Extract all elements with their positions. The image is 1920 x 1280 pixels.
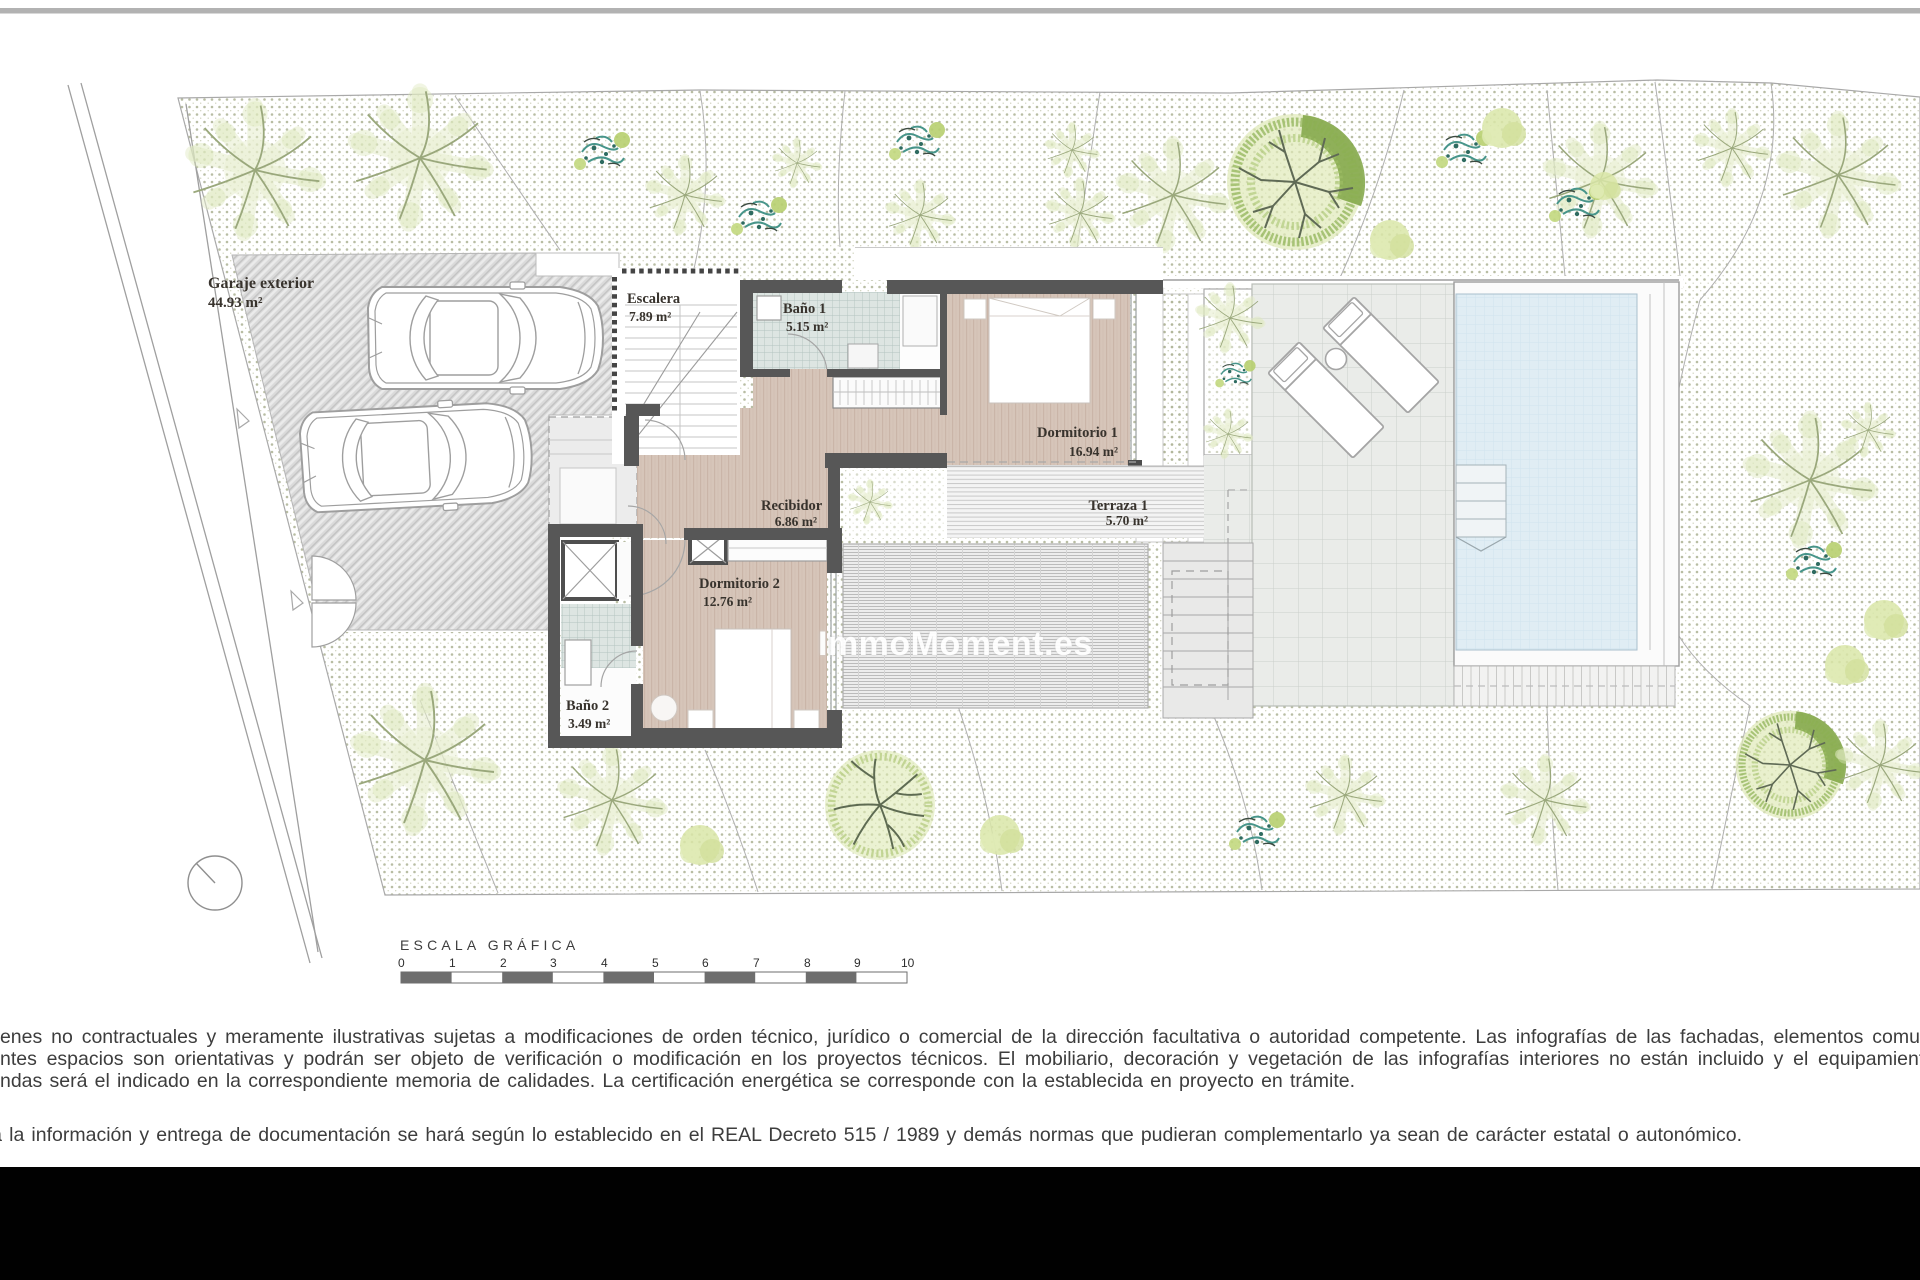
svg-text:8: 8 (804, 956, 811, 970)
svg-text:Imágenes no contractuales y me: Imágenes no contractuales y meramente il… (0, 1026, 1920, 1048)
svg-text:Dormitorio 1: Dormitorio 1 (1037, 425, 1118, 441)
svg-text:diferentes espacios son orient: diferentes espacios son orientativas y p… (0, 1048, 1920, 1070)
svg-text:Escalera: Escalera (627, 291, 681, 307)
svg-text:16.94 m²: 16.94 m² (1069, 444, 1118, 459)
svg-text:6.86 m²: 6.86 m² (775, 514, 817, 529)
svg-text:Recibidor: Recibidor (761, 498, 823, 514)
svg-text:Dormitorio 2: Dormitorio 2 (699, 576, 780, 592)
svg-text:0: 0 (398, 956, 405, 970)
svg-text:3.49 m²: 3.49 m² (568, 716, 610, 731)
svg-text:7.89 m²: 7.89 m² (629, 309, 671, 324)
svg-text:9: 9 (854, 956, 861, 970)
svg-text:Baño 2: Baño 2 (566, 698, 609, 714)
svg-text:Terraza 1: Terraza 1 (1089, 498, 1148, 514)
svg-text:7: 7 (753, 956, 760, 970)
svg-text:12.76 m²: 12.76 m² (703, 594, 752, 609)
svg-text:Garaje exterior: Garaje exterior (208, 275, 314, 292)
svg-text:ImmoMoment.es: ImmoMoment.es (818, 625, 1093, 663)
svg-text:las viviendas será el indicado: las viviendas será el indicado en la cor… (0, 1070, 1355, 1092)
svg-text:2: 2 (500, 956, 507, 970)
svg-text:5.15 m²: 5.15 m² (786, 319, 828, 334)
svg-text:Toda la información y entrega: Toda la información y entrega de documen… (0, 1124, 1742, 1146)
svg-text:5: 5 (652, 956, 659, 970)
svg-text:Baño 1: Baño 1 (783, 301, 826, 317)
svg-text:44.93 m²: 44.93 m² (208, 295, 263, 311)
svg-text:10: 10 (901, 956, 915, 970)
svg-text:4: 4 (601, 956, 608, 970)
svg-text:ESCALA GRÁFICA: ESCALA GRÁFICA (400, 937, 579, 953)
svg-text:6: 6 (702, 956, 709, 970)
svg-text:5.70 m²: 5.70 m² (1106, 513, 1148, 528)
svg-text:3: 3 (550, 956, 557, 970)
svg-text:1: 1 (449, 956, 456, 970)
